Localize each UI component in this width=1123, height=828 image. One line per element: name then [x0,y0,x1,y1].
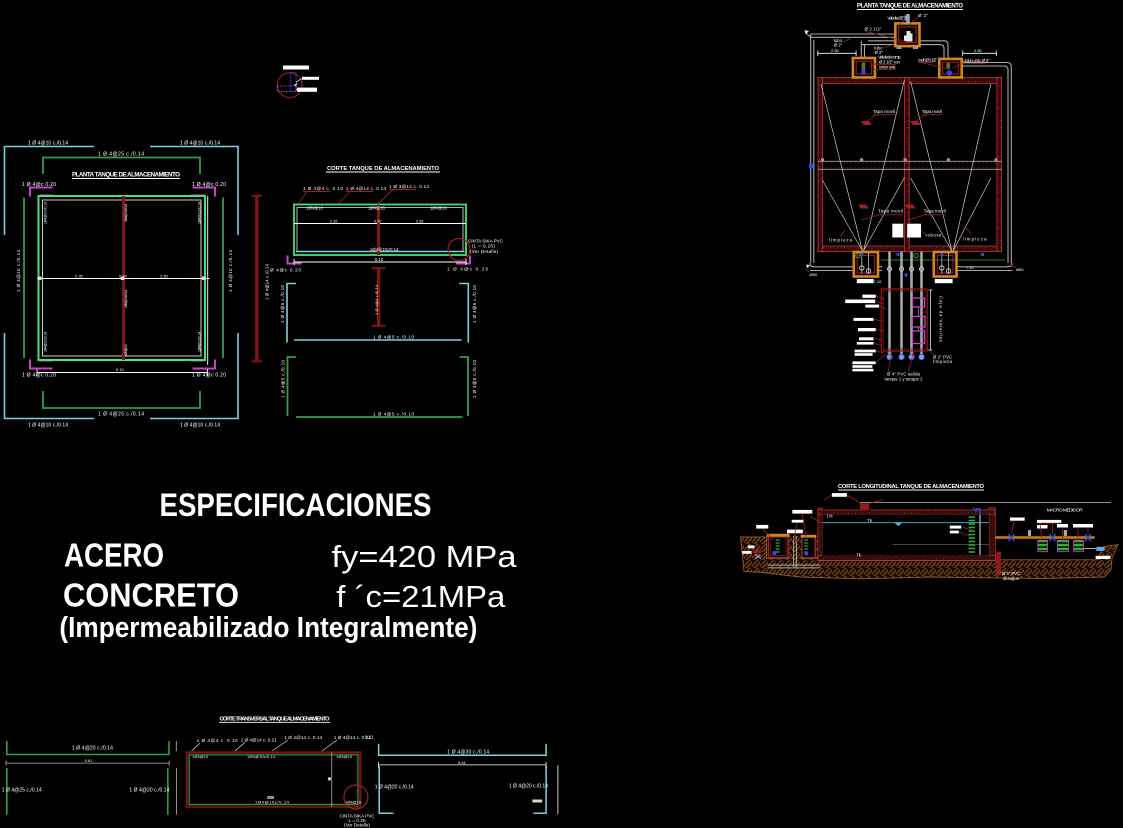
svg-text:Tapa movil: Tapa movil [873,109,895,114]
svg-text:1 Ø 4@5 c./0.10: 1 Ø 4@5 c./0.10 [280,284,285,323]
svg-text:1Ø4@10: 1Ø4@10 [192,754,209,759]
svg-text:1 Ø 4@25 c./0.14: 1 Ø 4@25 c./0.14 [98,152,144,158]
svg-text:Tapa movil: Tapa movil [924,209,946,214]
svg-text:codo Ø 2 1/2": codo Ø 2 1/2" [918,58,937,63]
svg-text:ESPECIFICACIONES: ESPECIFICACIONES [160,487,432,523]
svg-text:union univ.: union univ. [879,65,896,70]
svg-text:limpieza: limpieza [933,359,953,364]
svg-text:Tapa movil: Tapa movil [878,209,903,214]
svg-text:1Ø4@10: 1Ø4@10 [124,344,128,356]
svg-text:1 Ø 4@20 c./0.14: 1 Ø 4@20 c./0.14 [509,784,548,790]
svg-text:2.35: 2.35 [330,220,337,224]
svg-text:1Ø4@10c/0.14: 1Ø4@10c/0.14 [198,202,202,224]
svg-text:1Ø4@10: 1Ø4@10 [430,206,447,211]
svg-text:Valvula Ø2": Valvula Ø2" [887,16,904,21]
svg-text:1 Ø 4@10 c./0.14: 1 Ø 4@10 c./0.14 [28,423,68,429]
svg-text:1 Ø 4@20 c./0.14: 1 Ø 4@20 c./0.14 [375,785,414,791]
svg-text:1Ø4@10c/0.14: 1Ø4@10c/0.14 [255,800,290,805]
svg-text:0.20: 0.20 [374,220,381,224]
svg-text:1 Ø 4@5 c./0.10: 1 Ø 4@5 c./0.10 [281,359,286,398]
svg-text:Ø60: Ø60 [810,272,818,277]
svg-text:1 Ø 4@5 c./0.10: 1 Ø 4@5 c./0.10 [472,284,477,323]
svg-text:Caja de Valvulas: Caja de Valvulas [939,296,944,343]
svg-text:(L = 0.25): (L = 0.25) [472,244,495,249]
svg-text:Ø 2 1/2": Ø 2 1/2" [865,27,882,32]
svg-text:1 Ø 4@10 c./0.14: 1 Ø 4@10 c./0.14 [28,141,68,147]
svg-text:1 Ø 4@25 c./0.14: 1 Ø 4@25 c./0.14 [98,412,144,418]
svg-text:1 Ø 4@c 0.20: 1 Ø 4@c 0.20 [192,373,226,379]
svg-text:1 Ø 4@10 c./0.14: 1 Ø 4@10 c./0.14 [228,249,233,292]
svg-text:CORTE LONGITUDINAL TANQUE DE A: CORTE LONGITUDINAL TANQUE DE ALMACENAMIE… [838,484,984,490]
svg-text:1Ø4@10c/0.14: 1Ø4@10c/0.14 [198,332,202,352]
svg-text:MACRO MEDIDOR: MACRO MEDIDOR [1047,508,1084,514]
svg-text:1 Ø 4@14 c./0.14: 1 Ø 4@14 c./0.14 [265,263,270,300]
svg-text:1Ø4@10c/0.14: 1Ø4@10c/0.14 [44,332,48,352]
svg-text:fy=420 MPa: fy=420 MPa [332,539,518,574]
svg-text:(Ver Detalle): (Ver Detalle) [470,249,498,254]
svg-text:5.61: 5.61 [85,758,94,763]
svg-text:1Ø4@10: 1Ø4@10 [336,754,353,759]
svg-text:PLANTA TANQUE DE ALMACENAMIENT: PLANTA TANQUE DE ALMACENAMIENTO [72,172,180,179]
svg-text:1 Ø 4@c 0.20: 1 Ø 4@c 0.20 [192,182,226,188]
svg-text:1 Ø 4@4 c. 0.10: 1 Ø 4@4 c. 0.10 [303,186,343,191]
svg-text:1 Ø 4@5 c./0.10: 1 Ø 4@5 c./0.10 [373,412,415,417]
svg-text:2.35: 2.35 [160,274,169,279]
svg-text:1 Ø 4@20 c./0.14: 1 Ø 4@20 c./0.14 [72,745,113,751]
svg-text:ACERO: ACERO [64,537,164,574]
svg-text:(Impermeabilizado Integralment: (Impermeabilizado Integralmente) [59,612,477,644]
svg-text:0.20: 0.20 [119,274,128,279]
svg-text:Ø 2": Ø 2" [834,43,843,48]
svg-text:1Ø4@10c/0.14: 1Ø4@10c/0.14 [247,754,276,759]
svg-text:2.35: 2.35 [416,220,423,224]
svg-text:1 Ø 4@25 c./0.14: 1 Ø 4@25 c./0.14 [2,788,42,794]
svg-text:1 Ø 4@4 c./0.14: 1 Ø 4@4 c./0.14 [374,284,379,315]
svg-text:limpieza: limpieza [963,237,988,242]
svg-text:1Ø4@10c/014: 1Ø4@10c/014 [124,204,128,222]
svg-text:1Ø4@10: 1Ø4@10 [368,206,385,211]
svg-text:2.50: 2.50 [974,48,983,53]
svg-text:1 Ø 4@14 c. 0.14: 1 Ø 4@14 c. 0.14 [284,735,322,740]
svg-text:1 Ø 4@4 c. 0.10: 1 Ø 4@4 c. 0.10 [197,738,238,743]
svg-text:1Ø4@10c/0.14: 1Ø4@10c/0.14 [370,247,399,252]
svg-text:Ø 4@c 0.20: Ø 4@c 0.20 [270,268,301,273]
svg-text:CONCRETO: CONCRETO [63,577,239,614]
svg-text:1%: 1% [827,514,833,519]
svg-text:1 Ø 4@5 c./0.10: 1 Ø 4@5 c./0.10 [373,335,415,340]
svg-text:1 Ø 4@30 c./0.14: 1 Ø 4@30 c./0.14 [447,749,489,755]
svg-text:2.35: 2.35 [75,274,84,279]
svg-text:1 Ø 4@14 c. 0.14: 1 Ø 4@14 c. 0.14 [346,186,386,191]
svg-text:1 Ø 4@c 0.20: 1 Ø 4@c 0.20 [22,182,56,188]
svg-text:PLANTA TANQUE DE ALMACENAMIENT: PLANTA TANQUE DE ALMACENAMIENTO [857,4,963,10]
svg-text:1 Ø 4@14 c. 0.14: 1 Ø 4@14 c. 0.14 [389,184,429,189]
svg-text:1 Ø 4@14 c. 0.21: 1 Ø 4@14 c. 0.21 [241,737,277,742]
svg-text:1 Ø 4@10 c./0.14: 1 Ø 4@10 c./0.14 [16,249,21,292]
svg-text:1 Ø 4@5 c./0.10: 1 Ø 4@5 c./0.10 [472,359,477,398]
svg-text:0.21: 0.21 [365,735,374,740]
svg-text:CORTE TANQUE DE ALMACENAMIENTO: CORTE TANQUE DE ALMACENAMIENTO [327,166,439,172]
svg-text:Ø 2": Ø 2" [918,13,928,18]
svg-text:7.10: 7.10 [874,279,883,284]
svg-text:CORTE TRANSVERSAL TANQUE ALMAC: CORTE TRANSVERSAL TANQUE ALMACENAMIENTO [220,716,330,722]
svg-text:1Ø4@10c/0.14: 1Ø4@10c/0.14 [44,202,48,224]
svg-text:1Ø4@10c/014: 1Ø4@10c/014 [124,290,128,308]
svg-text:1 Ø 4@10 c./0.14: 1 Ø 4@10 c./0.14 [180,141,220,147]
svg-text:desague: desague [1003,576,1020,581]
svg-text:tanque 1 y tanque 2: tanque 1 y tanque 2 [885,376,924,381]
svg-text:(Ver Detalle): (Ver Detalle) [344,823,370,828]
svg-text:1Ø4@10: 1Ø4@10 [345,800,362,805]
svg-text:f ´c=21MPa: f ´c=21MPa [336,579,506,614]
svg-text:5.10: 5.10 [375,257,384,262]
svg-text:1Ø4@10: 1Ø4@10 [306,206,323,211]
svg-text:1 Ø 4@10 c./0.14: 1 Ø 4@10 c./0.14 [180,423,220,429]
svg-text:1 Ø 4@20 c./0.14: 1 Ø 4@20 c./0.14 [129,788,169,794]
svg-text:7.10: 7.10 [966,265,975,270]
svg-text:rebose: rebose [926,233,943,238]
svg-text:5.61: 5.61 [458,760,467,765]
svg-text:Tapa movil: Tapa movil [922,109,942,114]
svg-text:1 Ø 4@c 0.20: 1 Ø 4@c 0.20 [447,267,488,272]
svg-text:2.50: 2.50 [831,48,840,53]
svg-text:Ø60: Ø60 [1016,267,1024,272]
svg-text:5.10: 5.10 [116,367,125,372]
svg-text:1 Ø 4@c 0.20: 1 Ø 4@c 0.20 [22,373,56,379]
svg-text:union univ. Ø 2": union univ. Ø 2" [964,58,990,63]
svg-text:limpieza: limpieza [829,238,853,243]
